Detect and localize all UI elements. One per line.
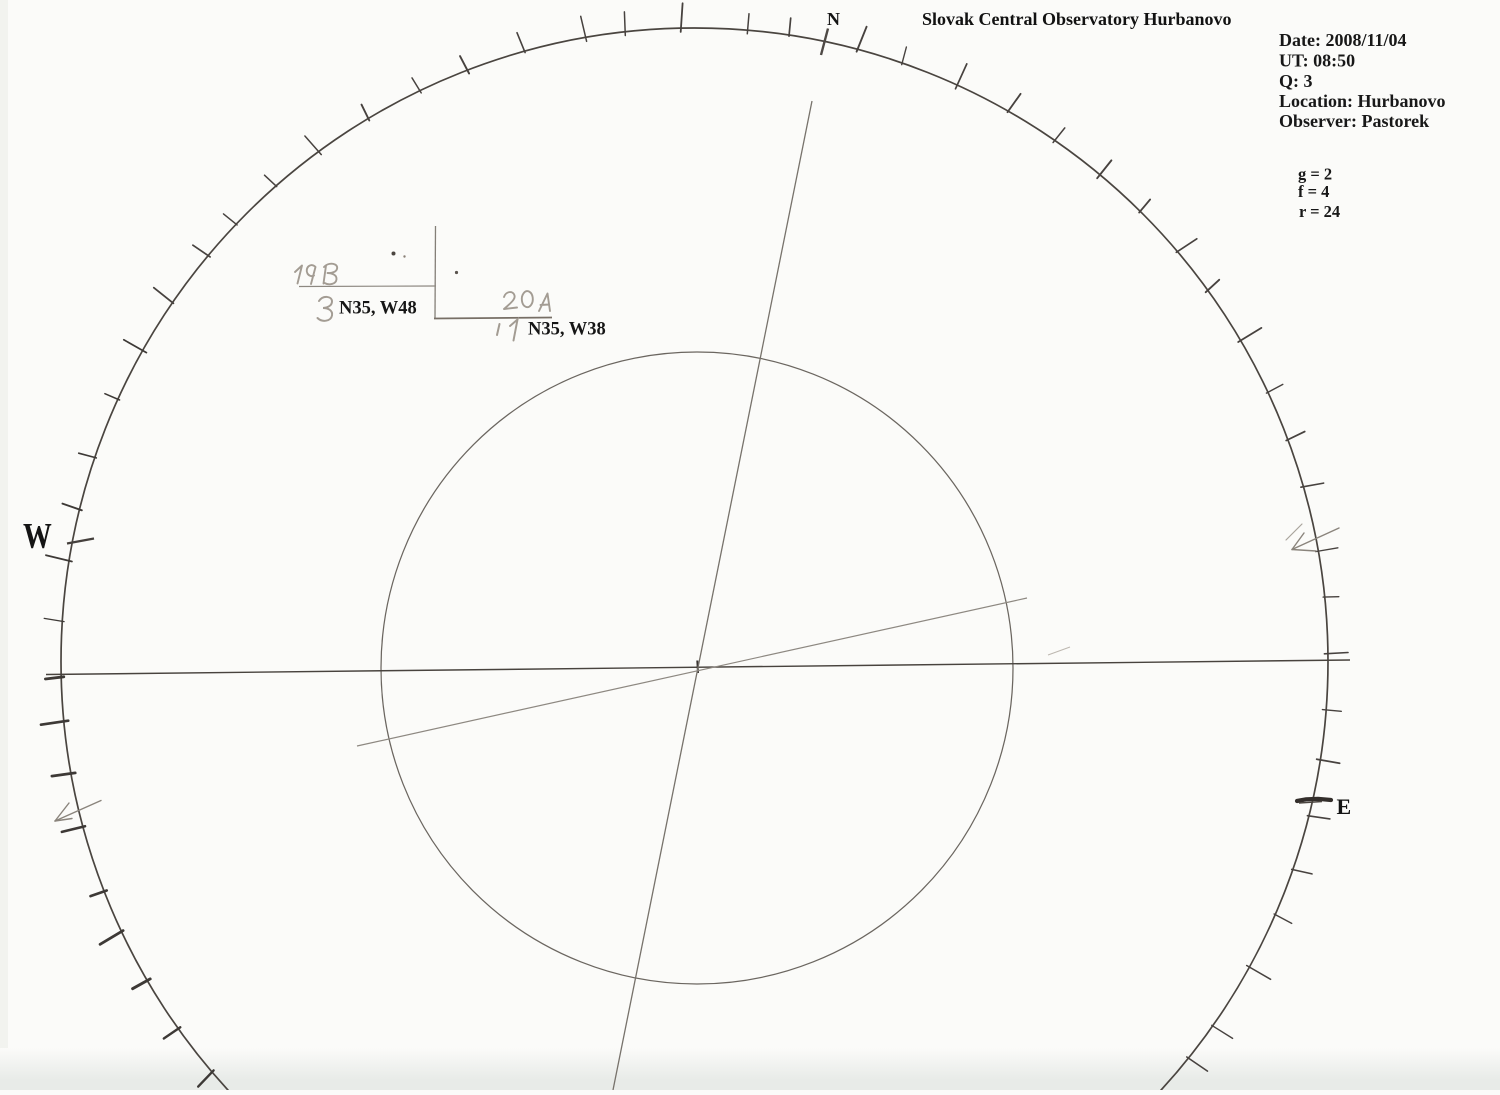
svg-text:Date: 2008/11/04: Date: 2008/11/04 xyxy=(1279,30,1407,50)
svg-text:W: W xyxy=(23,517,52,557)
svg-text:g = 2: g = 2 xyxy=(1298,165,1332,184)
svg-text:Q: 3: Q: 3 xyxy=(1279,71,1313,91)
svg-text:N: N xyxy=(827,9,840,29)
svg-text:f = 4: f = 4 xyxy=(1298,182,1329,201)
svg-text:UT: 08:50: UT: 08:50 xyxy=(1279,51,1355,71)
svg-text:Observer: Pastorek: Observer: Pastorek xyxy=(1279,111,1429,131)
svg-text:Slovak Central Observatory Hur: Slovak Central Observatory Hurbanovo xyxy=(922,9,1232,29)
svg-text:N35, W48: N35, W48 xyxy=(339,299,417,319)
svg-text:E: E xyxy=(1337,794,1352,819)
svg-text:N35, W38: N35, W38 xyxy=(528,320,606,340)
svg-text:Location: Hurbanovo: Location: Hurbanovo xyxy=(1279,91,1446,111)
svg-text:r = 24: r = 24 xyxy=(1299,202,1340,221)
